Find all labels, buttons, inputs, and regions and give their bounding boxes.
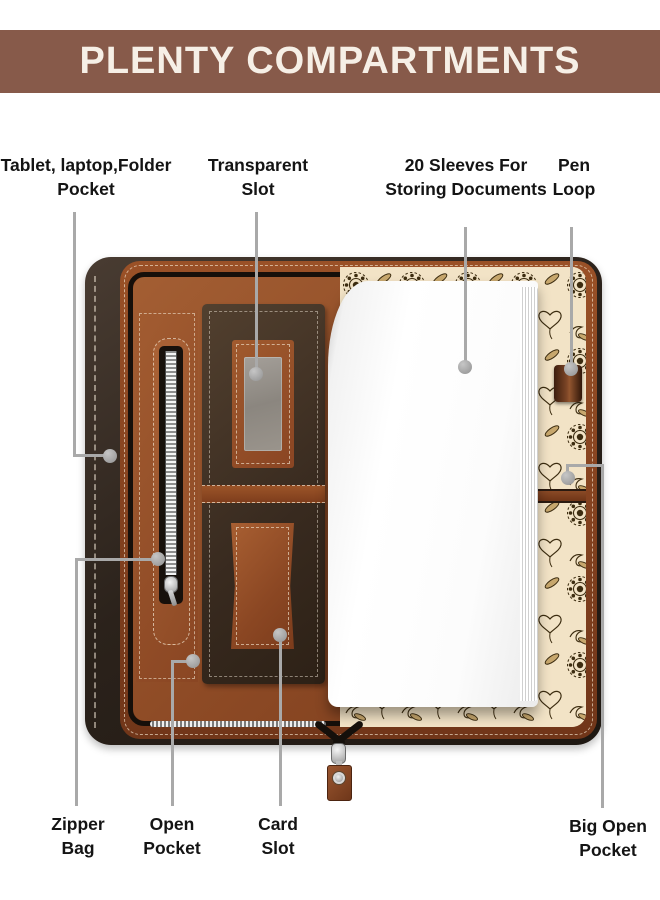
callout-line-transparent-slot bbox=[255, 212, 258, 374]
label-line: Tablet, laptop,Folder bbox=[0, 153, 186, 177]
label-line: Open bbox=[112, 812, 232, 836]
label-line: Pocket bbox=[538, 838, 660, 862]
label-line: Pen bbox=[534, 153, 614, 177]
callout-dot-zipper-bag bbox=[151, 552, 165, 566]
label-big-open-pocket: Big Open Pocket bbox=[538, 814, 660, 862]
case-stitch-line bbox=[94, 276, 96, 728]
callout-line-sleeves bbox=[464, 227, 467, 366]
callout-line-zipper-bag bbox=[75, 558, 155, 561]
callout-dot-card-slot bbox=[273, 628, 287, 642]
callout-line-zipper-bag bbox=[75, 558, 78, 806]
callout-dot-open-pocket bbox=[186, 654, 200, 668]
label-transparent-slot: Transparent Slot bbox=[188, 153, 328, 201]
callout-line-big-open-pocket bbox=[566, 464, 604, 467]
callout-line-open-pocket bbox=[171, 660, 174, 806]
label-pen-loop: Pen Loop bbox=[534, 153, 614, 201]
label-line: Transparent bbox=[188, 153, 328, 177]
product-infographic: PLENTY COMPARTMENTS bbox=[0, 0, 660, 900]
label-card-slot: Card Slot bbox=[228, 812, 328, 860]
label-line: Slot bbox=[228, 836, 328, 860]
callout-line-tablet-pocket bbox=[73, 454, 107, 457]
callout-line-big-open-pocket bbox=[601, 464, 604, 808]
zipper-teeth bbox=[165, 351, 177, 575]
label-line: Loop bbox=[534, 177, 614, 201]
panel-strap bbox=[202, 485, 325, 503]
document-sleeves bbox=[328, 281, 538, 707]
label-open-pocket: Open Pocket bbox=[112, 812, 232, 860]
label-line: Big Open bbox=[538, 814, 660, 838]
callout-dot-pen-loop bbox=[564, 362, 578, 376]
callout-line-pen-loop bbox=[570, 227, 573, 367]
label-line: Pocket bbox=[0, 177, 186, 201]
title-banner: PLENTY COMPARTMENTS bbox=[0, 30, 660, 93]
label-line: Slot bbox=[188, 177, 328, 201]
label-line: Pocket bbox=[112, 836, 232, 860]
page-edges bbox=[520, 287, 538, 701]
callout-dot-transparent-slot bbox=[249, 367, 263, 381]
callout-dot-big-open-pocket bbox=[561, 471, 575, 485]
callout-line-card-slot bbox=[279, 634, 282, 806]
callout-dot-sleeves bbox=[458, 360, 472, 374]
banner-title: PLENTY COMPARTMENTS bbox=[79, 40, 580, 83]
label-line: Card bbox=[228, 812, 328, 836]
callout-dot-tablet-pocket bbox=[103, 449, 117, 463]
label-tablet-pocket: Tablet, laptop,Folder Pocket bbox=[0, 153, 186, 201]
bottom-zipper-teeth bbox=[150, 721, 326, 727]
pull-tab-grommet bbox=[333, 772, 345, 784]
callout-line-tablet-pocket bbox=[73, 212, 76, 457]
